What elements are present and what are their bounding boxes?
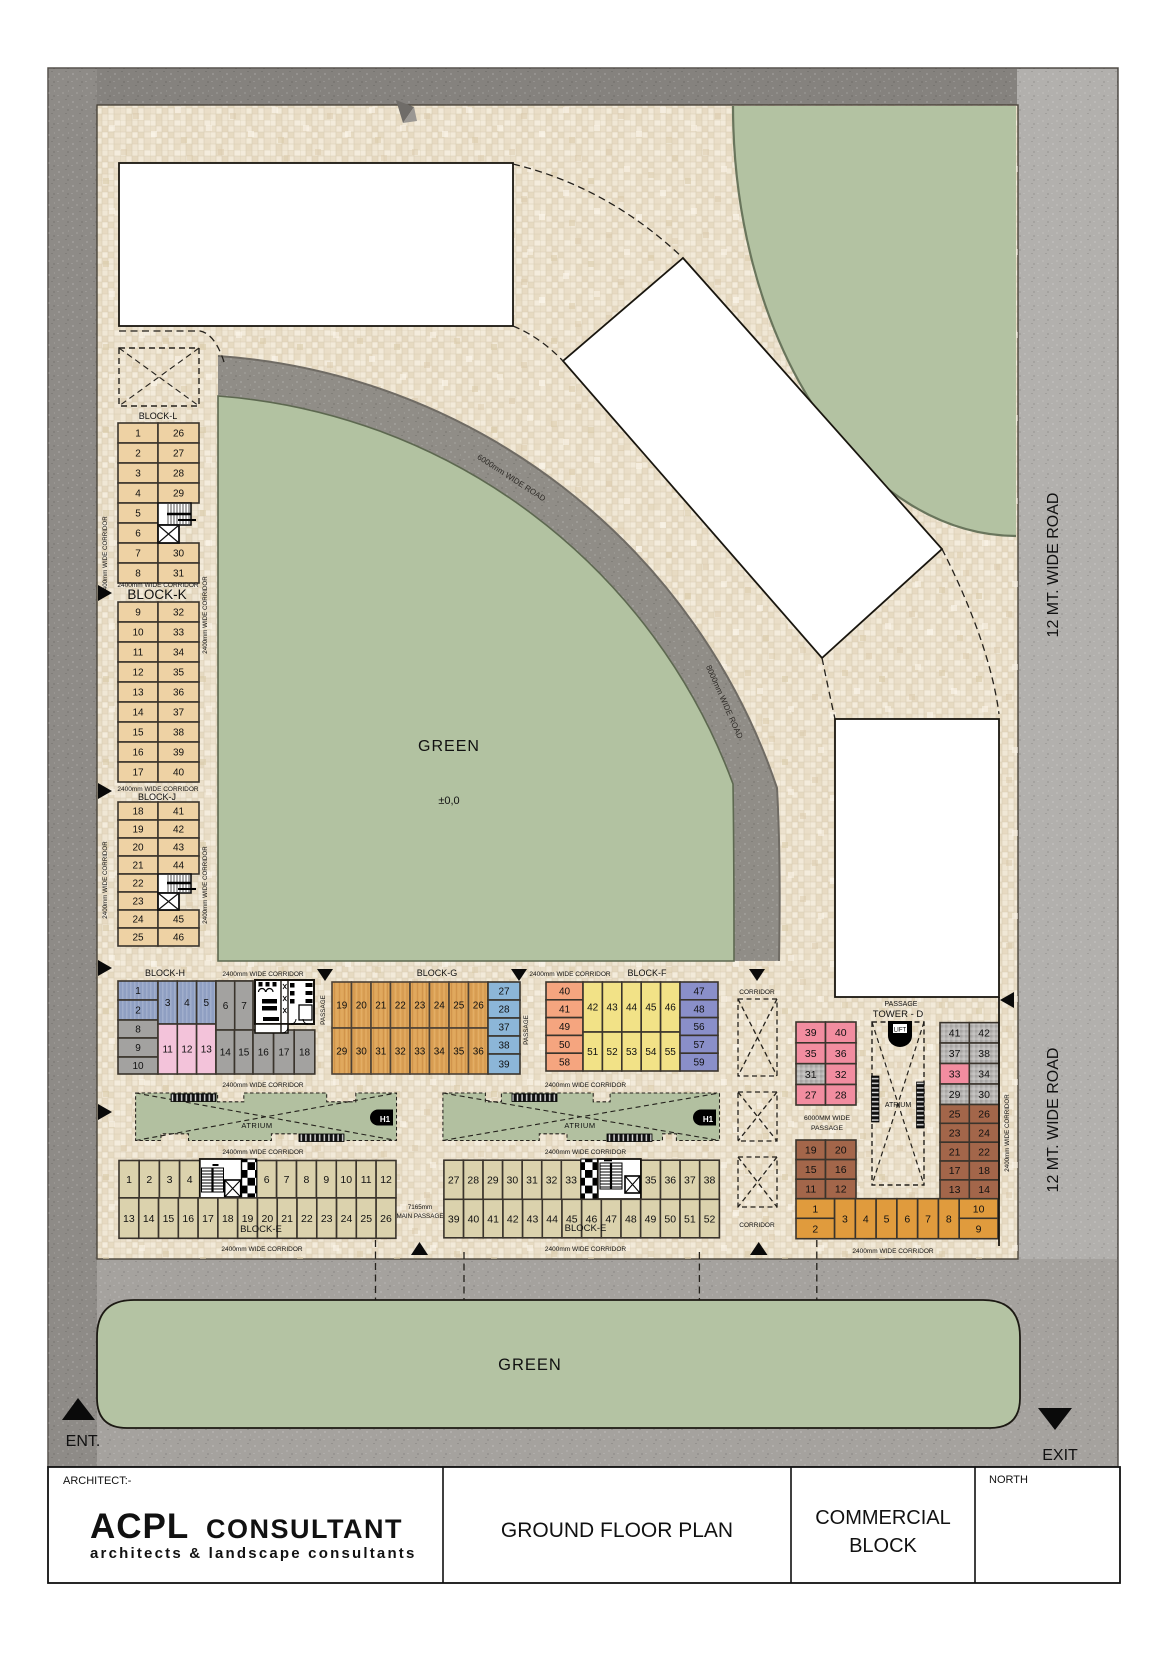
- svg-text:19: 19: [805, 1145, 817, 1157]
- svg-text:MAIN PASSAGE: MAIN PASSAGE: [396, 1213, 443, 1220]
- svg-text:8: 8: [946, 1213, 952, 1225]
- svg-text:2: 2: [135, 449, 141, 460]
- svg-text:5: 5: [203, 998, 209, 1009]
- svg-text:31: 31: [173, 569, 185, 580]
- svg-text:15: 15: [163, 1213, 175, 1225]
- svg-text:52: 52: [704, 1213, 716, 1225]
- svg-text:44: 44: [173, 861, 185, 872]
- svg-text:BLOCK-J: BLOCK-J: [138, 792, 176, 802]
- svg-text:2400mm WIDE CORRIDOR: 2400mm WIDE CORRIDOR: [529, 971, 611, 978]
- svg-text:18: 18: [299, 1048, 311, 1059]
- svg-text:41: 41: [173, 807, 185, 818]
- svg-text:BLOCK-F: BLOCK-F: [627, 968, 667, 978]
- svg-text:23: 23: [949, 1128, 961, 1140]
- svg-text:11: 11: [805, 1184, 816, 1196]
- svg-text:ENT.: ENT.: [66, 1433, 101, 1450]
- svg-text:40: 40: [468, 1213, 480, 1225]
- svg-text:26: 26: [473, 1001, 485, 1012]
- svg-text:LIFT: LIFT: [894, 1028, 907, 1034]
- svg-text:36: 36: [173, 688, 185, 699]
- svg-text:EXIT: EXIT: [1042, 1447, 1078, 1464]
- svg-text:29: 29: [949, 1089, 961, 1101]
- svg-text:4: 4: [184, 998, 190, 1009]
- svg-text:22: 22: [132, 879, 144, 890]
- svg-text:6: 6: [904, 1213, 910, 1225]
- svg-text:2: 2: [146, 1174, 152, 1186]
- svg-text:40: 40: [173, 768, 185, 779]
- svg-text:10: 10: [132, 1061, 144, 1072]
- svg-text:10: 10: [973, 1203, 985, 1215]
- svg-text:±0,0: ±0,0: [438, 795, 459, 807]
- svg-text:7: 7: [284, 1174, 290, 1186]
- svg-text:32: 32: [173, 608, 185, 619]
- svg-text:44: 44: [546, 1213, 558, 1225]
- svg-text:2400mm WIDE CORRIDOR: 2400mm WIDE CORRIDOR: [222, 1149, 304, 1156]
- svg-text:21: 21: [375, 1001, 387, 1012]
- svg-text:55: 55: [665, 1047, 677, 1058]
- svg-text:28: 28: [467, 1175, 479, 1187]
- svg-text:57: 57: [693, 1040, 705, 1051]
- svg-text:BLOCK-G: BLOCK-G: [417, 968, 458, 978]
- svg-text:PASSAGE: PASSAGE: [811, 1125, 843, 1132]
- svg-text:35: 35: [805, 1048, 817, 1060]
- svg-text:BLOCK-E: BLOCK-E: [240, 1224, 282, 1235]
- svg-text:22: 22: [978, 1146, 990, 1158]
- svg-text:2400mm WIDE CORRIDOR: 2400mm WIDE CORRIDOR: [202, 576, 209, 654]
- svg-text:3: 3: [165, 998, 171, 1009]
- svg-text:9: 9: [323, 1174, 329, 1186]
- svg-text:20: 20: [356, 1001, 368, 1012]
- svg-text:35: 35: [645, 1175, 657, 1187]
- svg-text:GROUND FLOOR PLAN: GROUND FLOOR PLAN: [501, 1519, 733, 1542]
- svg-text:14: 14: [220, 1048, 232, 1059]
- svg-text:26: 26: [978, 1109, 990, 1121]
- svg-text:43: 43: [607, 1003, 619, 1014]
- svg-text:39: 39: [173, 748, 185, 759]
- svg-text:30: 30: [507, 1175, 519, 1187]
- svg-text:3: 3: [842, 1213, 848, 1225]
- svg-text:BLOCK-K: BLOCK-K: [127, 587, 186, 602]
- svg-text:10: 10: [132, 628, 144, 639]
- svg-text:25: 25: [453, 1001, 465, 1012]
- svg-text:19: 19: [132, 825, 144, 836]
- svg-text:29: 29: [336, 1047, 348, 1058]
- svg-text:41: 41: [949, 1028, 961, 1040]
- svg-text:16: 16: [182, 1213, 194, 1225]
- svg-text:26: 26: [173, 429, 185, 440]
- svg-text:37: 37: [173, 708, 185, 719]
- svg-text:H1: H1: [380, 1115, 391, 1124]
- svg-text:2400mm WIDE CORRIDOR: 2400mm WIDE CORRIDOR: [545, 1082, 627, 1089]
- svg-text:ACPL: ACPL: [90, 1507, 189, 1546]
- svg-text:2400mm WIDE CORRIDOR: 2400mm WIDE CORRIDOR: [222, 971, 304, 978]
- svg-text:23: 23: [414, 1001, 426, 1012]
- svg-text:6: 6: [223, 1001, 229, 1012]
- svg-text:39: 39: [448, 1213, 460, 1225]
- svg-text:architects & landscape consult: architects & landscape consultants: [90, 1545, 417, 1562]
- svg-text:17: 17: [132, 768, 144, 779]
- svg-text:H1: H1: [703, 1115, 714, 1124]
- svg-text:2400mm WIDE CORRIDOR: 2400mm WIDE CORRIDOR: [202, 846, 209, 924]
- svg-text:36: 36: [664, 1175, 676, 1187]
- svg-text:13: 13: [132, 688, 144, 699]
- svg-text:2400mm WIDE CORRIDOR: 2400mm WIDE CORRIDOR: [221, 1246, 303, 1253]
- svg-text:43: 43: [527, 1213, 539, 1225]
- svg-text:1: 1: [812, 1203, 818, 1215]
- svg-text:4: 4: [187, 1174, 193, 1186]
- svg-text:11: 11: [162, 1045, 173, 1056]
- svg-text:7: 7: [241, 1001, 247, 1012]
- svg-text:28: 28: [835, 1090, 847, 1102]
- svg-text:40: 40: [835, 1027, 847, 1039]
- svg-text:31: 31: [526, 1175, 538, 1187]
- svg-text:37: 37: [498, 1023, 510, 1034]
- svg-text:49: 49: [645, 1213, 657, 1225]
- svg-text:10: 10: [340, 1174, 352, 1186]
- svg-text:47: 47: [693, 987, 705, 998]
- svg-text:33: 33: [173, 628, 185, 639]
- svg-text:CORRIDOR: CORRIDOR: [739, 1222, 775, 1229]
- svg-text:1: 1: [135, 429, 141, 440]
- svg-text:CORRIDOR: CORRIDOR: [739, 989, 775, 996]
- svg-text:7: 7: [135, 549, 141, 560]
- svg-text:50: 50: [664, 1213, 676, 1225]
- svg-text:2400mm WIDE CORRIDOR: 2400mm WIDE CORRIDOR: [222, 1082, 304, 1089]
- svg-text:31: 31: [805, 1069, 817, 1081]
- svg-text:53: 53: [626, 1047, 638, 1058]
- svg-text:14: 14: [143, 1213, 155, 1225]
- svg-text:2400mm WIDE CORRIDOR: 2400mm WIDE CORRIDOR: [1004, 1094, 1011, 1172]
- svg-text:16: 16: [258, 1048, 270, 1059]
- svg-text:41: 41: [559, 1004, 571, 1015]
- svg-text:52: 52: [607, 1047, 619, 1058]
- svg-text:37: 37: [949, 1048, 961, 1060]
- svg-text:34: 34: [434, 1047, 446, 1058]
- svg-text:28: 28: [173, 469, 185, 480]
- svg-text:1: 1: [135, 986, 141, 997]
- svg-text:13: 13: [123, 1213, 135, 1225]
- svg-text:26: 26: [380, 1213, 392, 1225]
- svg-text:36: 36: [835, 1048, 847, 1060]
- svg-text:42: 42: [173, 825, 185, 836]
- svg-text:35: 35: [173, 668, 185, 679]
- svg-text:1: 1: [126, 1174, 132, 1186]
- svg-text:BLOCK: BLOCK: [849, 1535, 917, 1557]
- svg-text:30: 30: [356, 1047, 368, 1058]
- svg-text:12 MT. WIDE ROAD: 12 MT. WIDE ROAD: [1045, 493, 1062, 638]
- svg-text:20: 20: [835, 1145, 847, 1157]
- svg-text:46: 46: [665, 1003, 677, 1014]
- svg-text:32: 32: [395, 1047, 407, 1058]
- svg-text:17: 17: [278, 1048, 290, 1059]
- svg-text:45: 45: [173, 915, 185, 926]
- svg-text:29: 29: [173, 489, 185, 500]
- svg-text:22: 22: [395, 1001, 407, 1012]
- svg-text:BLOCK-H: BLOCK-H: [145, 968, 185, 978]
- svg-text:2: 2: [135, 1006, 141, 1017]
- svg-text:32: 32: [546, 1175, 558, 1187]
- svg-text:24: 24: [132, 915, 144, 926]
- svg-text:54: 54: [645, 1047, 657, 1058]
- svg-text:31: 31: [375, 1047, 387, 1058]
- svg-text:2400mm WIDE CORRIDOR: 2400mm WIDE CORRIDOR: [545, 1246, 627, 1253]
- svg-text:PASSAGE: PASSAGE: [523, 1015, 530, 1045]
- svg-text:12: 12: [132, 668, 144, 679]
- svg-text:56: 56: [693, 1022, 705, 1033]
- svg-text:2400mm WIDE CORRIDOR: 2400mm WIDE CORRIDOR: [102, 516, 109, 594]
- svg-text:23: 23: [321, 1213, 333, 1225]
- svg-text:PASSAGE: PASSAGE: [885, 1001, 918, 1008]
- svg-text:2400mm WIDE CORRIDOR: 2400mm WIDE CORRIDOR: [852, 1248, 934, 1255]
- svg-text:12: 12: [181, 1045, 193, 1056]
- svg-text:38: 38: [704, 1175, 716, 1187]
- svg-text:50: 50: [559, 1040, 571, 1051]
- svg-text:33: 33: [565, 1175, 577, 1187]
- svg-text:14: 14: [132, 708, 144, 719]
- svg-text:30: 30: [978, 1089, 990, 1101]
- svg-text:18: 18: [978, 1165, 990, 1177]
- svg-text:17: 17: [202, 1213, 214, 1225]
- svg-text:6: 6: [135, 529, 141, 540]
- svg-text:4: 4: [135, 489, 141, 500]
- svg-text:15: 15: [805, 1164, 817, 1176]
- svg-text:24: 24: [978, 1128, 990, 1140]
- svg-text:8: 8: [135, 569, 141, 580]
- svg-text:NORTH: NORTH: [989, 1474, 1028, 1486]
- svg-text:COMMERCIAL: COMMERCIAL: [815, 1507, 951, 1529]
- svg-text:9: 9: [135, 608, 141, 619]
- svg-text:42: 42: [978, 1028, 990, 1040]
- svg-text:28: 28: [498, 1005, 510, 1016]
- svg-text:ARCHITECT:-: ARCHITECT:-: [63, 1475, 132, 1487]
- svg-text:42: 42: [507, 1213, 519, 1225]
- svg-text:21: 21: [281, 1213, 293, 1225]
- svg-text:39: 39: [498, 1060, 510, 1071]
- svg-text:51: 51: [684, 1213, 696, 1225]
- svg-text:41: 41: [487, 1213, 499, 1225]
- svg-text:27: 27: [498, 987, 510, 998]
- svg-text:18: 18: [222, 1213, 234, 1225]
- svg-text:5: 5: [135, 509, 141, 520]
- svg-text:3: 3: [167, 1174, 173, 1186]
- svg-text:GREEN: GREEN: [418, 738, 480, 755]
- svg-text:27: 27: [448, 1175, 460, 1187]
- svg-text:GREEN: GREEN: [498, 1356, 562, 1374]
- svg-text:15: 15: [132, 728, 144, 739]
- svg-text:PASSAGE: PASSAGE: [320, 995, 327, 1025]
- svg-text:21: 21: [132, 861, 144, 872]
- svg-text:39: 39: [805, 1027, 817, 1039]
- svg-text:37: 37: [684, 1175, 696, 1187]
- svg-text:18: 18: [132, 807, 144, 818]
- svg-text:49: 49: [559, 1022, 571, 1033]
- svg-text:8: 8: [304, 1174, 310, 1186]
- svg-text:22: 22: [301, 1213, 313, 1225]
- svg-text:7: 7: [925, 1213, 931, 1225]
- svg-text:40: 40: [559, 987, 571, 998]
- svg-text:2: 2: [812, 1223, 818, 1235]
- svg-text:30: 30: [173, 549, 185, 560]
- svg-text:12: 12: [380, 1174, 392, 1186]
- svg-text:14: 14: [978, 1184, 990, 1196]
- svg-text:38: 38: [173, 728, 185, 739]
- svg-text:7165mm: 7165mm: [408, 1204, 433, 1211]
- svg-text:23: 23: [132, 897, 144, 908]
- svg-text:27: 27: [805, 1090, 817, 1102]
- svg-text:16: 16: [835, 1164, 847, 1176]
- svg-text:12: 12: [835, 1184, 847, 1196]
- svg-text:33: 33: [949, 1069, 961, 1081]
- svg-text:19: 19: [336, 1001, 348, 1012]
- svg-text:48: 48: [693, 1004, 705, 1015]
- svg-text:9: 9: [135, 1043, 141, 1054]
- svg-text:38: 38: [498, 1041, 510, 1052]
- svg-text:42: 42: [587, 1003, 599, 1014]
- svg-text:16: 16: [132, 748, 144, 759]
- svg-text:27: 27: [173, 449, 185, 460]
- svg-text:34: 34: [978, 1069, 990, 1081]
- svg-text:59: 59: [693, 1058, 705, 1069]
- svg-text:24: 24: [434, 1001, 446, 1012]
- svg-text:5: 5: [884, 1213, 890, 1225]
- svg-text:48: 48: [625, 1213, 637, 1225]
- svg-text:15: 15: [238, 1048, 250, 1059]
- svg-text:11: 11: [361, 1174, 372, 1186]
- svg-text:25: 25: [360, 1213, 372, 1225]
- svg-text:25: 25: [132, 933, 144, 944]
- svg-text:20: 20: [132, 843, 144, 854]
- svg-text:32: 32: [835, 1069, 847, 1081]
- svg-text:36: 36: [473, 1047, 485, 1058]
- svg-text:ATRIUM: ATRIUM: [885, 1102, 911, 1109]
- svg-text:34: 34: [173, 648, 185, 659]
- svg-text:33: 33: [414, 1047, 426, 1058]
- svg-text:2400mm WIDE CORRIDOR: 2400mm WIDE CORRIDOR: [545, 1149, 627, 1156]
- svg-text:BLOCK-E: BLOCK-E: [565, 1223, 607, 1234]
- svg-text:25: 25: [949, 1109, 961, 1121]
- svg-text:24: 24: [341, 1213, 353, 1225]
- svg-text:45: 45: [645, 1003, 657, 1014]
- svg-text:3: 3: [135, 469, 141, 480]
- svg-text:BLOCK-L: BLOCK-L: [139, 411, 178, 421]
- svg-text:43: 43: [173, 843, 185, 854]
- svg-text:35: 35: [453, 1047, 465, 1058]
- svg-text:51: 51: [587, 1047, 599, 1058]
- svg-text:8: 8: [135, 1025, 141, 1036]
- svg-text:6000MM WIDE: 6000MM WIDE: [804, 1115, 851, 1122]
- svg-text:TOWER - D: TOWER - D: [873, 1009, 924, 1020]
- svg-text:9: 9: [976, 1223, 982, 1235]
- svg-text:13: 13: [949, 1184, 961, 1196]
- svg-text:44: 44: [626, 1003, 638, 1014]
- svg-text:11: 11: [133, 648, 144, 659]
- svg-text:CONSULTANT: CONSULTANT: [206, 1514, 403, 1544]
- svg-text:ATRIUM: ATRIUM: [564, 1121, 595, 1130]
- svg-text:58: 58: [559, 1058, 571, 1069]
- svg-text:21: 21: [949, 1146, 961, 1158]
- svg-text:17: 17: [949, 1165, 961, 1177]
- svg-text:4: 4: [863, 1213, 869, 1225]
- svg-text:ATRIUM: ATRIUM: [241, 1121, 272, 1130]
- svg-text:2400mm WIDE CORRIDOR: 2400mm WIDE CORRIDOR: [102, 841, 109, 919]
- svg-text:38: 38: [978, 1048, 990, 1060]
- svg-text:47: 47: [605, 1213, 617, 1225]
- svg-text:6: 6: [264, 1174, 270, 1186]
- svg-text:29: 29: [487, 1175, 499, 1187]
- svg-text:13: 13: [201, 1045, 213, 1056]
- svg-text:12 MT. WIDE ROAD: 12 MT. WIDE ROAD: [1045, 1048, 1062, 1193]
- svg-text:46: 46: [173, 933, 185, 944]
